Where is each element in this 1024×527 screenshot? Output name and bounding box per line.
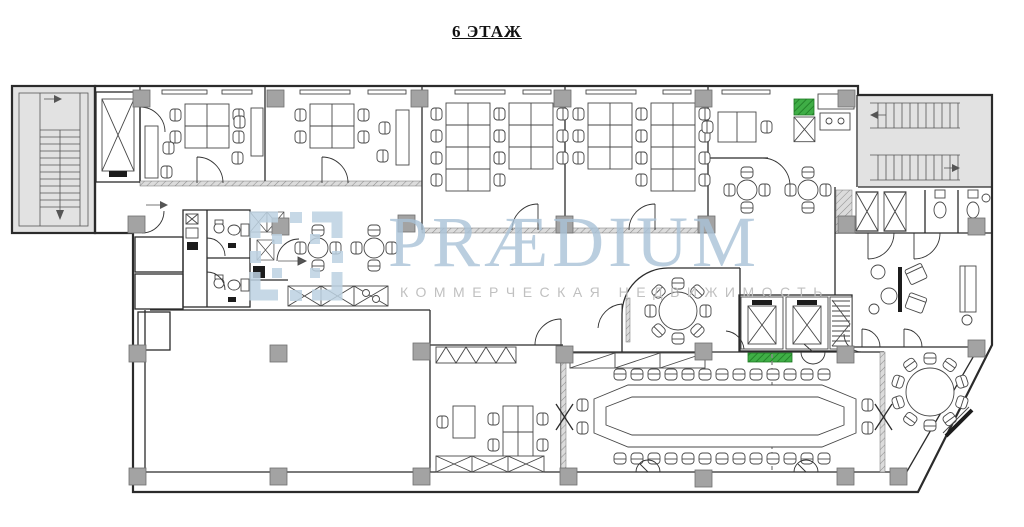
office-room-2 [295, 90, 409, 183]
lounge-area [862, 263, 976, 347]
office-room-1 [140, 90, 263, 183]
breakout-office [436, 319, 561, 472]
elevator-bank [726, 295, 852, 364]
meeting-room [598, 268, 740, 352]
green-marker [748, 353, 792, 362]
office-room-3 [431, 90, 568, 230]
conference-table [594, 385, 856, 447]
wc-block-left [183, 210, 284, 307]
break-area-right [724, 167, 831, 213]
conference-room [570, 334, 873, 472]
left-staircase [12, 86, 95, 233]
right-staircase [858, 95, 992, 187]
floor-plan-page: 6 ЭТАЖ [0, 0, 1024, 527]
office-room-4 [573, 90, 710, 230]
round-table-room [891, 353, 972, 436]
break-area-left [277, 225, 397, 306]
floor-plan [0, 0, 1024, 527]
wc-block-right [836, 190, 990, 259]
office-room-5 [702, 90, 772, 142]
